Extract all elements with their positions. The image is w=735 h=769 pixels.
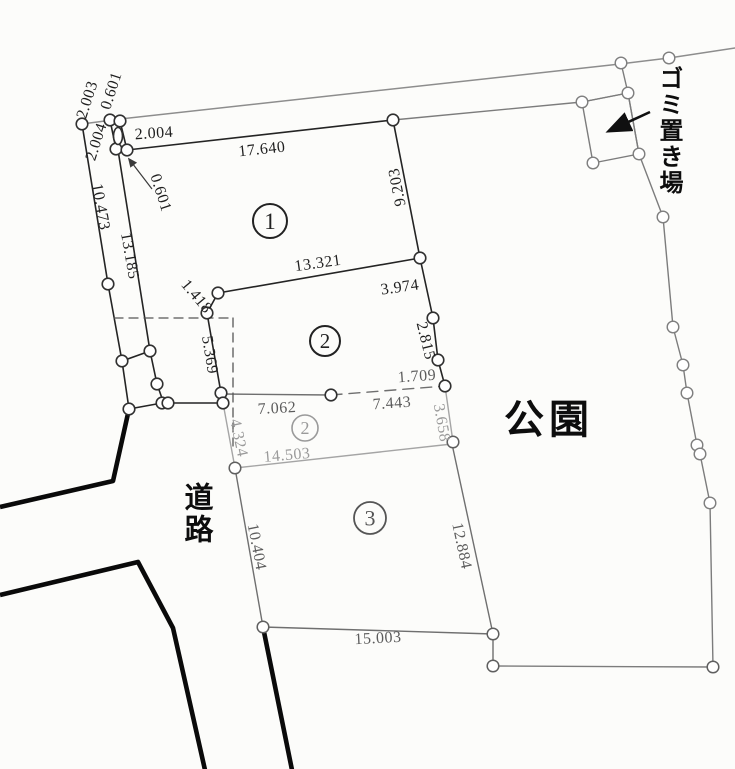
dimension-pointer-arrow [129,159,152,189]
survey-point [681,387,693,399]
road-edge-lower [0,562,205,769]
parcel2-south-edge [222,394,331,395]
survey-point [110,143,122,155]
parcel-number-text: 3 [365,505,376,530]
parcel3-west-edge [235,468,263,627]
parcel-number-text: 2 [301,418,310,438]
survey-point [162,397,174,409]
survey-point [427,312,439,324]
road-edge-upper [0,409,129,507]
survey-point [325,389,337,401]
parcel-number-2: 2 [292,415,318,441]
survey-point [487,660,499,672]
parcel-number-1: 1 [253,204,287,238]
survey-point [151,378,163,390]
park-south-boundary [493,666,713,667]
boundary-monument-oval [114,128,123,145]
survey-point [123,403,135,415]
strip-south-edge [235,444,452,468]
survey-point [387,114,399,126]
survey-point [707,661,719,673]
road-frontage-line [129,403,223,409]
survey-point [432,354,444,366]
survey-point [633,148,645,160]
survey-point [217,397,229,409]
garbage-pointer-arrow [609,112,650,131]
survey-point [576,96,588,108]
strip-east-edge [445,386,453,442]
park-east-boundary [628,93,713,667]
survey-point [587,157,599,169]
survey-point [229,462,241,474]
survey-point [76,118,88,130]
survey-point [144,345,156,357]
cadastral-survey-plat: 1223 公園 道路 ゴミ置き場 2.0030.6012.0042.00417.… [0,0,735,769]
survey-point [114,115,126,127]
survey-point [447,436,459,448]
survey-point [657,211,669,223]
parcel3-east-edge [452,444,493,634]
survey-point [201,307,213,319]
parcel2-south-edge-dashed [331,386,445,395]
survey-point [694,448,706,460]
survey-point [121,144,133,156]
survey-drawing: 1223 [0,0,735,769]
survey-point [257,621,269,633]
survey-point [704,497,716,509]
parcel-number-2: 2 [310,326,340,356]
parcel3-south-edge [263,627,493,634]
survey-point [102,278,114,290]
road-edge-east [263,627,292,769]
parcel-number-3: 3 [354,502,386,534]
survey-point [622,87,634,99]
garbage-area-outline [582,93,639,163]
parcel-number-text: 2 [320,329,331,353]
street-line [82,48,735,124]
survey-point [487,628,499,640]
park-north-boundary [393,93,628,120]
survey-point [663,52,675,64]
survey-point [414,252,426,264]
parcel2-west-edge [207,313,221,393]
parcel-number-text: 1 [264,209,276,234]
parcel1-north-edge [127,120,393,150]
survey-point [667,321,679,333]
survey-point [212,287,224,299]
parcel1-south-edge [218,258,420,293]
survey-point [116,355,128,367]
survey-point [677,359,689,371]
survey-point [439,380,451,392]
survey-point [615,57,627,69]
